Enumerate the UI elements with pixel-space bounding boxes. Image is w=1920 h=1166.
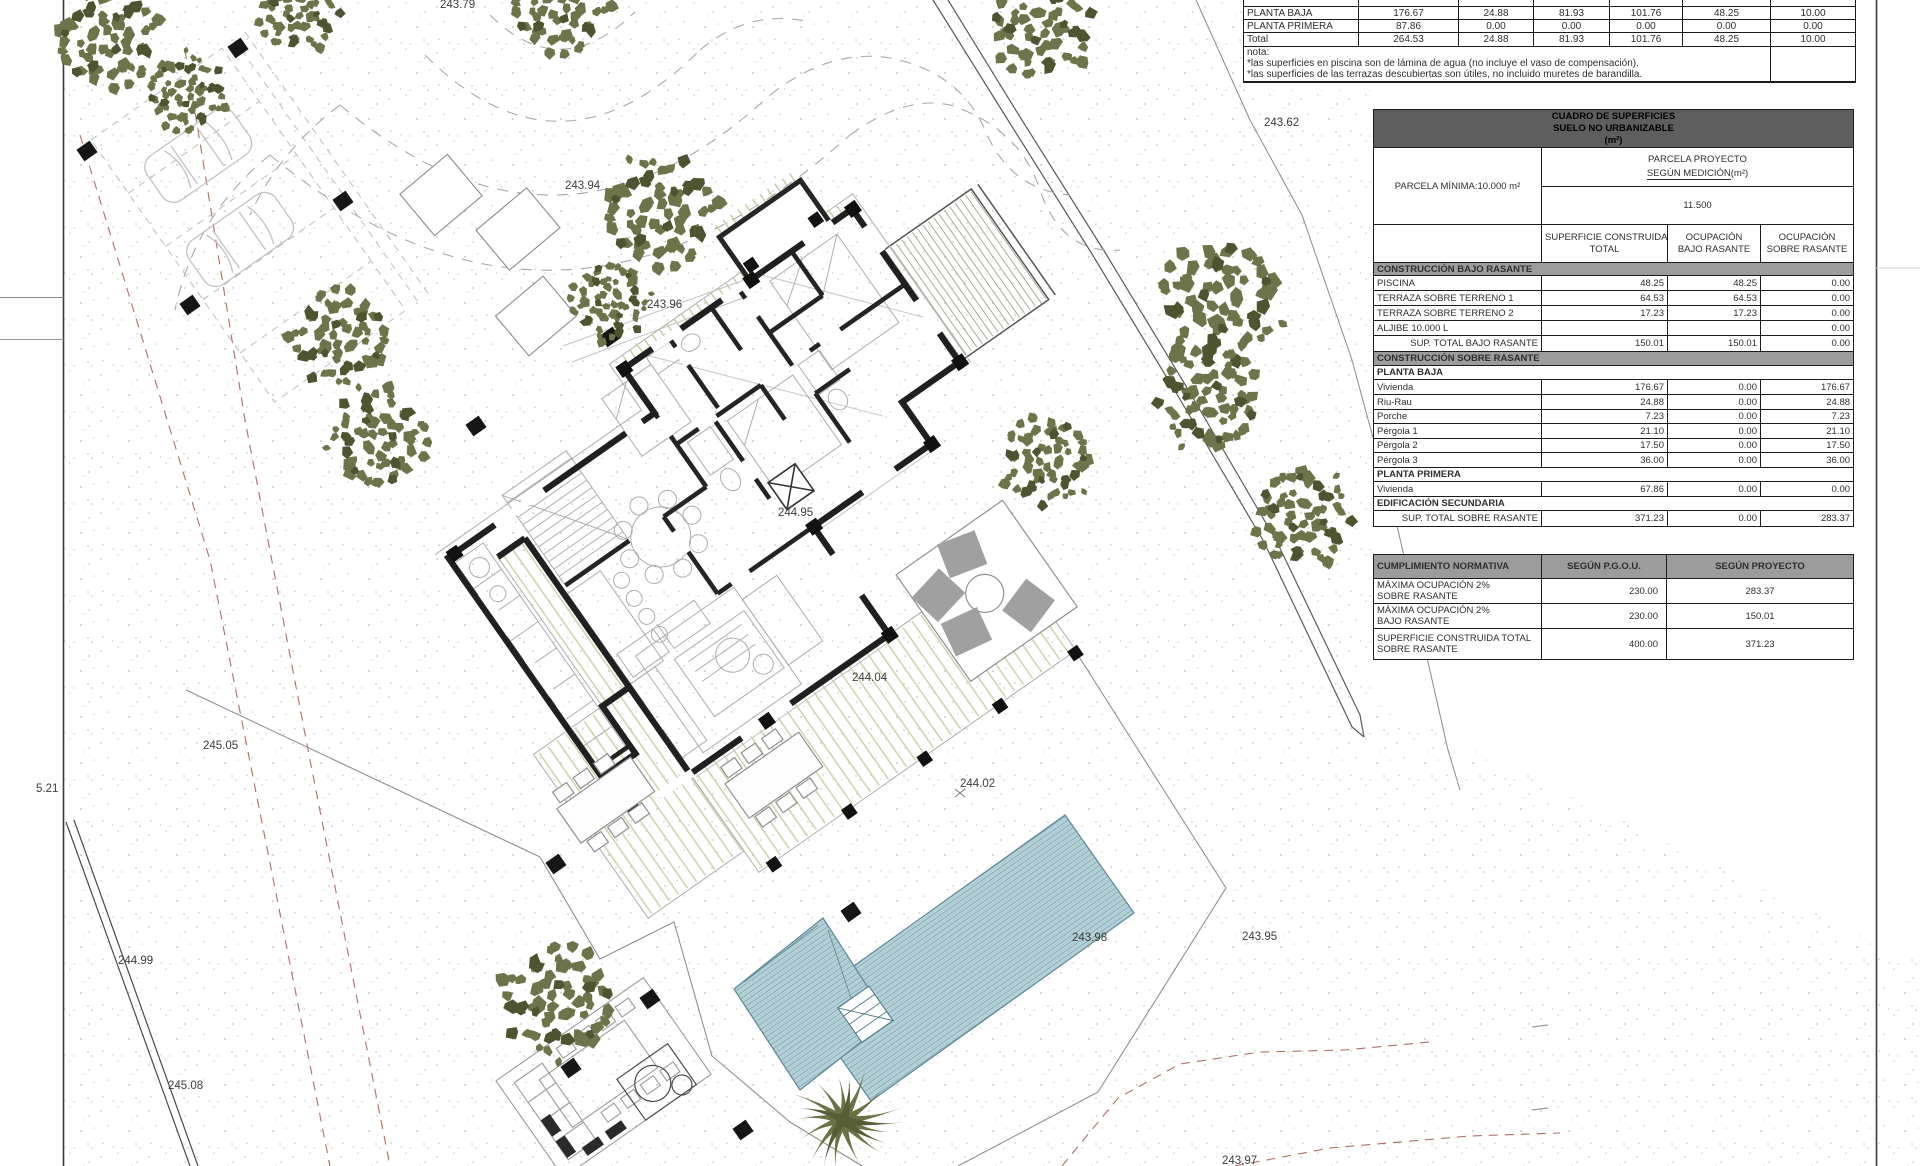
svg-text:244.95: 244.95 [778, 507, 813, 519]
svg-text:5.21: 5.21 [36, 783, 58, 795]
svg-text:243.62: 243.62 [1264, 117, 1299, 129]
svg-text:245.08: 245.08 [168, 1080, 203, 1092]
svg-text:244.02: 244.02 [960, 778, 995, 790]
svg-text:244.04: 244.04 [852, 672, 888, 684]
svg-text:243.96: 243.96 [647, 299, 682, 311]
svg-text:243.97: 243.97 [1222, 1155, 1257, 1166]
svg-text:243.95: 243.95 [1242, 931, 1277, 943]
svg-text:244.99: 244.99 [118, 955, 153, 967]
svg-text:243.79: 243.79 [440, 0, 475, 11]
svg-text:243.94: 243.94 [565, 180, 601, 192]
svg-text:243.98: 243.98 [1072, 932, 1107, 944]
svg-text:245.05: 245.05 [203, 740, 238, 752]
